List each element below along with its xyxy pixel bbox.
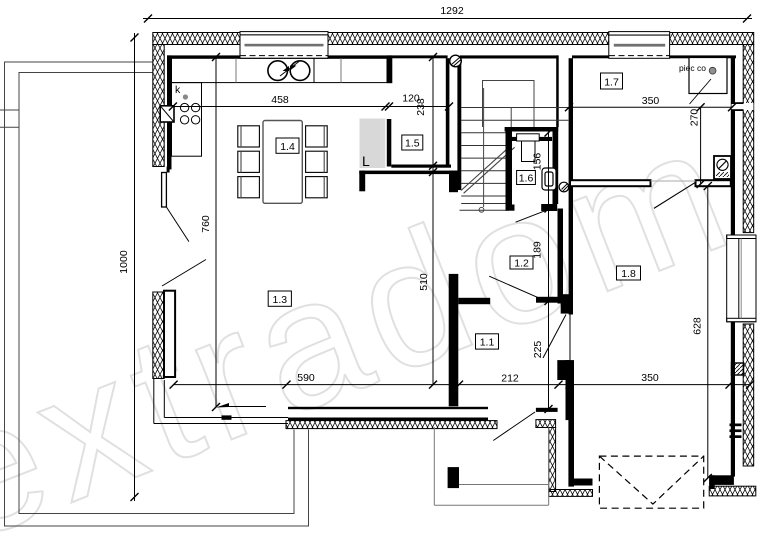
svg-text:1.8: 1.8	[621, 268, 636, 280]
svg-text:1.5: 1.5	[405, 138, 420, 150]
svg-text:510: 510	[418, 273, 430, 291]
svg-text:k: k	[175, 84, 181, 96]
svg-text:628: 628	[692, 317, 704, 335]
svg-text:piec co: piec co	[679, 63, 706, 73]
svg-text:1.7: 1.7	[604, 76, 619, 88]
svg-text:156: 156	[532, 153, 544, 171]
svg-text:225: 225	[532, 341, 544, 359]
svg-text:238: 238	[415, 98, 427, 116]
svg-text:270: 270	[689, 109, 701, 127]
svg-text:212: 212	[501, 373, 519, 385]
svg-text:458: 458	[271, 94, 289, 106]
svg-text:1292: 1292	[440, 5, 464, 17]
svg-text:1.6: 1.6	[519, 173, 534, 185]
svg-text:760: 760	[200, 215, 212, 233]
svg-text:1.4: 1.4	[280, 141, 295, 153]
svg-text:350: 350	[641, 372, 659, 384]
svg-text:1.1: 1.1	[480, 337, 495, 349]
svg-text:1.2: 1.2	[514, 257, 529, 269]
svg-text:1000: 1000	[118, 250, 130, 274]
svg-text:590: 590	[297, 372, 315, 384]
svg-text:1.3: 1.3	[272, 294, 287, 306]
svg-text:L: L	[362, 153, 370, 169]
svg-text:350: 350	[642, 95, 660, 107]
